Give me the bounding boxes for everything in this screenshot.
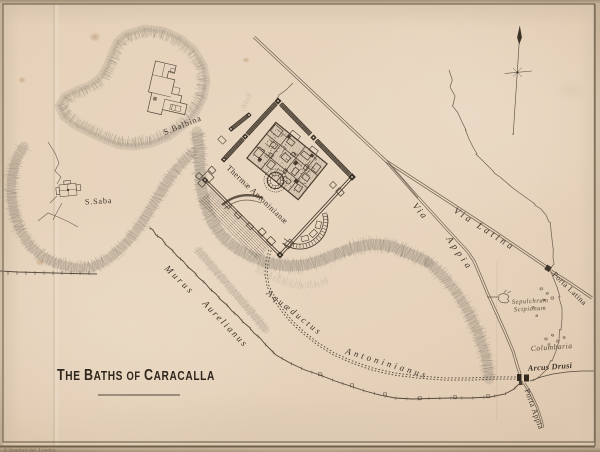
svg-text:S.Saba: S.Saba [85, 196, 113, 206]
svg-text:THE BATHS OF CARACALLA: THE BATHS OF CARACALLA [57, 367, 215, 385]
